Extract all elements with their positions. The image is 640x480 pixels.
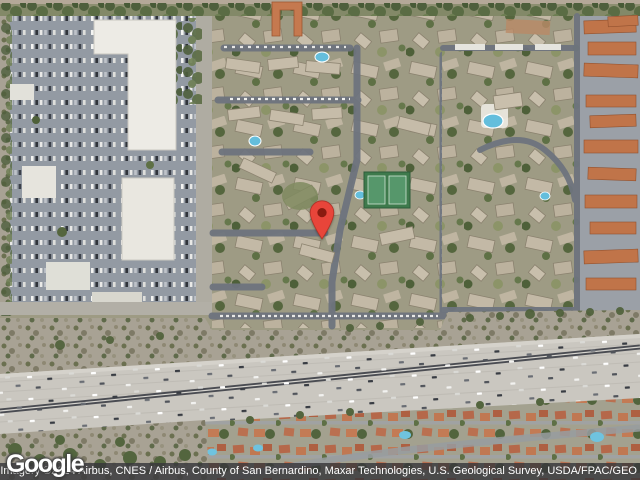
- south-street: [0, 302, 212, 315]
- location-pin[interactable]: [309, 200, 335, 240]
- google-logo[interactable]: Google: [6, 450, 83, 479]
- shopping-center: [0, 16, 212, 316]
- satellite-map[interactable]: Google Imagery ©2024 Airbus, CNES / Airb…: [0, 0, 640, 480]
- condo-complex-center: [212, 2, 443, 328]
- tennis-courts: [364, 172, 410, 208]
- attribution-text: Imagery ©2024 Airbus, CNES / Airbus, Cou…: [0, 463, 637, 480]
- attribution-bar: Imagery ©2024 Airbus, CNES / Airbus, Cou…: [0, 463, 640, 480]
- swimming-pool: [249, 136, 261, 146]
- swimming-pool: [483, 114, 503, 128]
- swimming-pool: [540, 192, 550, 200]
- pin-dot: [317, 208, 326, 217]
- pin-body: [310, 201, 334, 239]
- swimming-pool: [315, 52, 329, 62]
- anchor-store-roof: [122, 178, 174, 260]
- satellite-imagery: [0, 0, 640, 480]
